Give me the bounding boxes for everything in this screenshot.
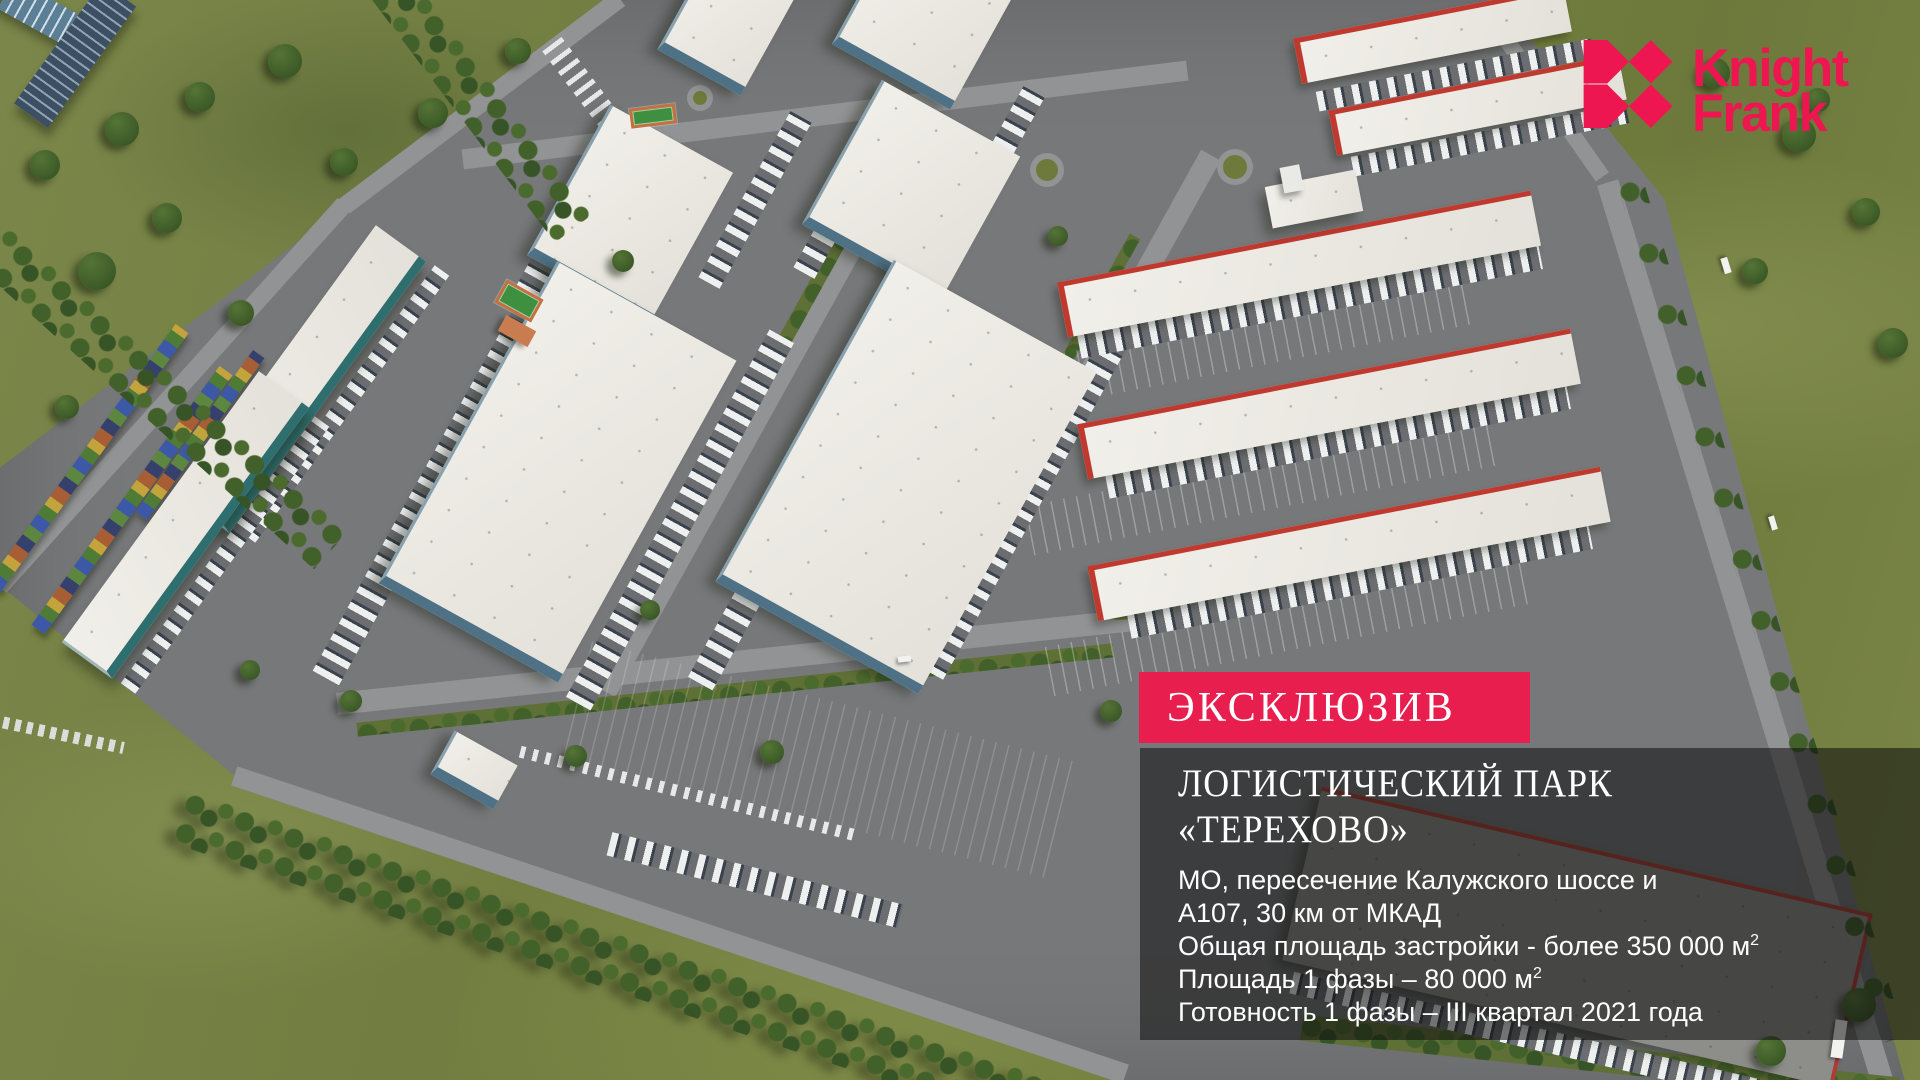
tree [268, 44, 302, 78]
tree [185, 82, 215, 112]
tree [640, 600, 660, 620]
exclusive-badge-label: ЭКСКЛЮЗИВ [1167, 684, 1456, 732]
tree [55, 395, 79, 419]
detail-line-location-1: МО, пересечение Калужского шоссе и [1178, 864, 1900, 897]
tree [152, 203, 182, 233]
knight-frank-logo: Knight Frank [1583, 40, 1851, 136]
detail-line-total-area: Общая площадь застройки - более 350 000 … [1178, 930, 1900, 963]
tree [30, 150, 60, 180]
exclusive-badge: ЭКСКЛЮЗИВ [1139, 672, 1530, 743]
tree [1878, 328, 1908, 358]
tree [760, 740, 784, 764]
roundabout [687, 85, 713, 111]
park-title-line1: ЛОГИСТИЧЕСКИЙ ПАРК [1178, 761, 1842, 807]
tree [330, 148, 358, 176]
tree [78, 252, 116, 290]
park-title-line2: «ТЕРЕХОВО» [1178, 807, 1842, 853]
tree [105, 112, 139, 146]
park-details: МО, пересечение Калужского шоссе и А107,… [1178, 864, 1900, 1029]
detail-line-phase1-readiness: Готовность 1 фазы – III квартал 2021 год… [1178, 996, 1900, 1029]
kf-monogram-icon [1583, 40, 1675, 128]
tree [240, 660, 260, 680]
detail-line-location-2: А107, 30 км от МКАД [1178, 897, 1900, 930]
tree [505, 38, 531, 64]
info-panel: ЛОГИСТИЧЕСКИЙ ПАРК «ТЕРЕХОВО» МО, пересе… [1140, 748, 1920, 1040]
roundabout [1030, 153, 1064, 187]
tree [565, 745, 587, 767]
detail-line-phase1-area: Площадь 1 фазы – 80 000 м2 [1178, 963, 1900, 996]
tree [1100, 700, 1122, 722]
logo-word-line2: Frank [1692, 91, 1848, 136]
park-title: ЛОГИСТИЧЕСКИЙ ПАРК «ТЕРЕХОВО» [1178, 761, 1842, 853]
marketing-slide: Knight Frank ЭКСКЛЮЗИВ ЛОГИСТИЧЕСКИЙ ПАР… [0, 0, 1920, 1080]
tree [228, 300, 254, 326]
tree [1742, 258, 1768, 284]
tree [612, 250, 634, 272]
tree [1048, 226, 1068, 246]
tree [340, 690, 362, 712]
tree [418, 98, 448, 128]
logo-wordmark: Knight Frank [1692, 40, 1848, 136]
tree [1852, 198, 1880, 226]
roundabout [1217, 149, 1253, 185]
tree [1756, 1036, 1786, 1066]
